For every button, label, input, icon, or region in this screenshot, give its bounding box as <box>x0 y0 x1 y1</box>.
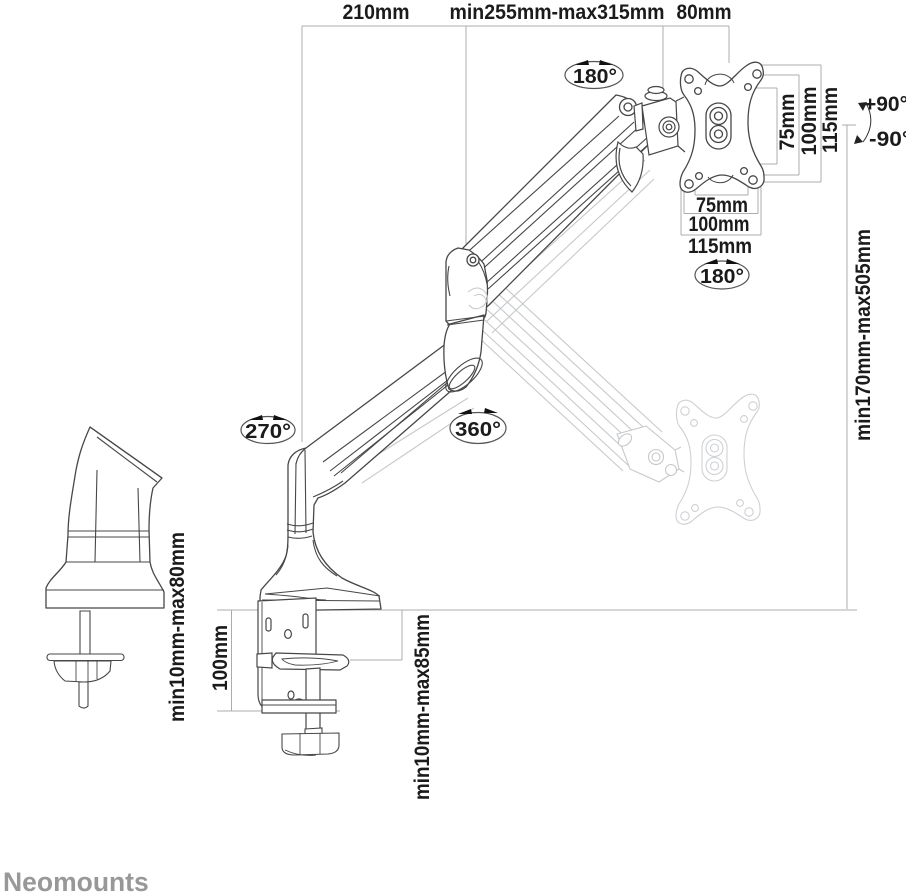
svg-text:115mm: 115mm <box>818 87 842 153</box>
svg-text:210mm: 210mm <box>343 0 410 24</box>
svg-text:Neomounts: Neomounts <box>3 867 149 895</box>
svg-text:75mm: 75mm <box>775 94 799 151</box>
svg-text:min10mm-max85mm: min10mm-max85mm <box>410 614 434 800</box>
svg-text:min170mm-max505mm: min170mm-max505mm <box>851 229 875 441</box>
svg-text:min10mm-max80mm: min10mm-max80mm <box>165 532 189 722</box>
svg-text:-90°: -90° <box>869 127 906 151</box>
svg-text:min255mm-max315mm: min255mm-max315mm <box>450 0 665 24</box>
svg-text:360°: 360° <box>455 419 501 441</box>
svg-text:100mm: 100mm <box>689 212 750 236</box>
svg-text:270°: 270° <box>245 421 291 443</box>
svg-text:180°: 180° <box>700 266 744 288</box>
svg-text:180°: 180° <box>573 66 617 88</box>
svg-text:115mm: 115mm <box>688 234 752 258</box>
svg-text:80mm: 80mm <box>677 0 732 24</box>
svg-text:100mm: 100mm <box>208 625 232 691</box>
